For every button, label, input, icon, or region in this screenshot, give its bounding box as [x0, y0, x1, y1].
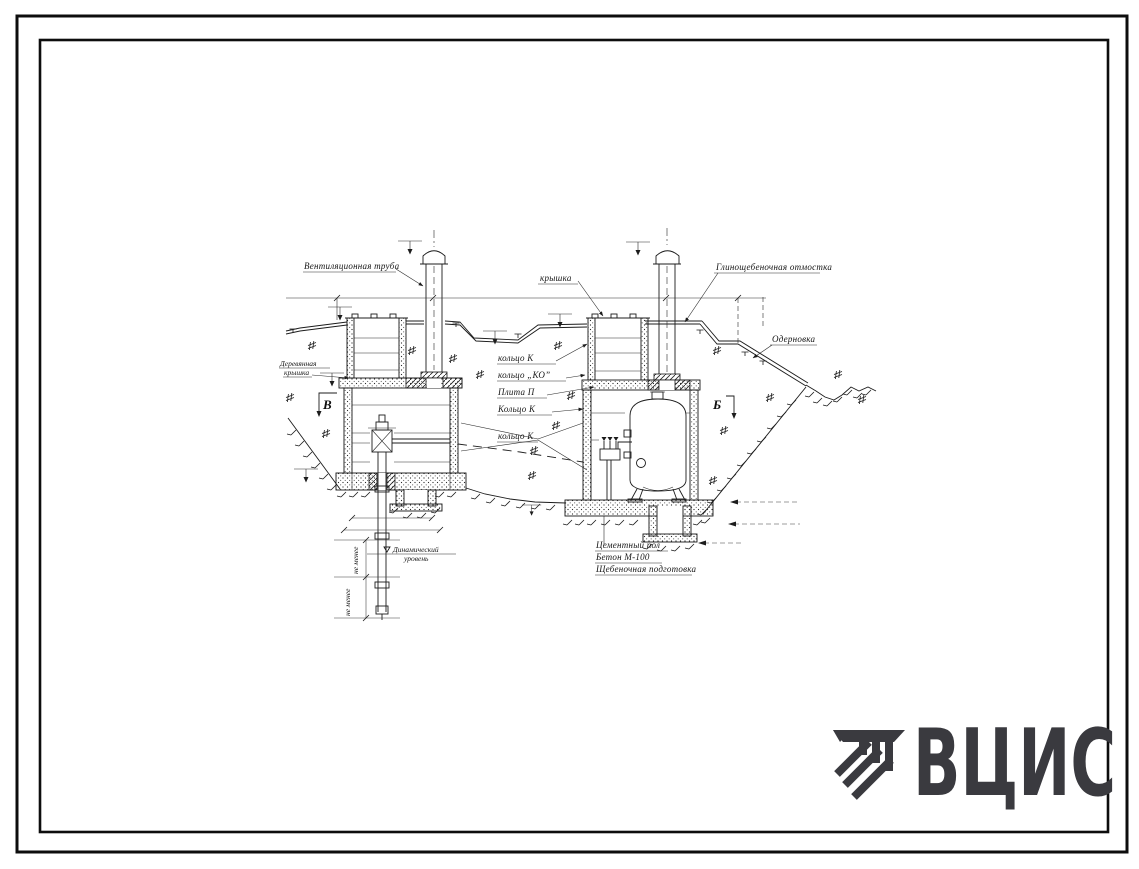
label-cement-floor: Цементный пол [595, 540, 660, 550]
soil-symbols [286, 323, 866, 485]
logo-text: ВЦИС [913, 709, 1116, 817]
label-not-less-upper: не менее [351, 546, 360, 574]
pressure-tank [600, 392, 686, 502]
label-ring-k-low: кольцо К [498, 431, 534, 441]
label-slab-p: Плита П [497, 387, 535, 397]
vcis-emblem-icon [833, 730, 905, 797]
label-leaders [279, 269, 820, 575]
label-ring-ko: кольцо „КО” [498, 370, 550, 380]
label-turfing: Одерновка [772, 334, 816, 344]
label-cover: крышка [540, 273, 572, 283]
label-not-less-lower: не менее [343, 588, 352, 616]
right-tank-chamber [563, 314, 713, 551]
label-dynamic-level-1: Динамический [392, 545, 439, 554]
well-pump-assembly [368, 415, 583, 620]
label-concrete: Бетон М-100 [595, 552, 650, 562]
technical-drawing: Вентиляционная труба крышка Глинощебеноч… [0, 0, 1139, 869]
drawing-sheet: Вентиляционная труба крышка Глинощебеноч… [0, 0, 1139, 869]
section-mark-right: Б [712, 397, 721, 412]
dimension-lines [286, 241, 800, 621]
label-blind-area: Глинощебеночная отмостка [715, 262, 832, 272]
label-vent-pipe: Вентиляционная труба [304, 261, 400, 271]
label-wooden-cover-1: Деревянная [279, 359, 317, 368]
label-rubble-prep: Щебеночная подготовка [595, 564, 697, 574]
label-dynamic-level-2: уровень [403, 554, 429, 563]
label-ring-k-top: кольцо К [498, 353, 534, 363]
left-well-structure [336, 314, 466, 518]
label-wooden-cover-2: крышка [284, 368, 309, 377]
section-mark-left: В [322, 397, 332, 412]
logo: ВЦИС [833, 709, 1116, 817]
label-ring-k-mid: Кольцо К [497, 404, 536, 414]
